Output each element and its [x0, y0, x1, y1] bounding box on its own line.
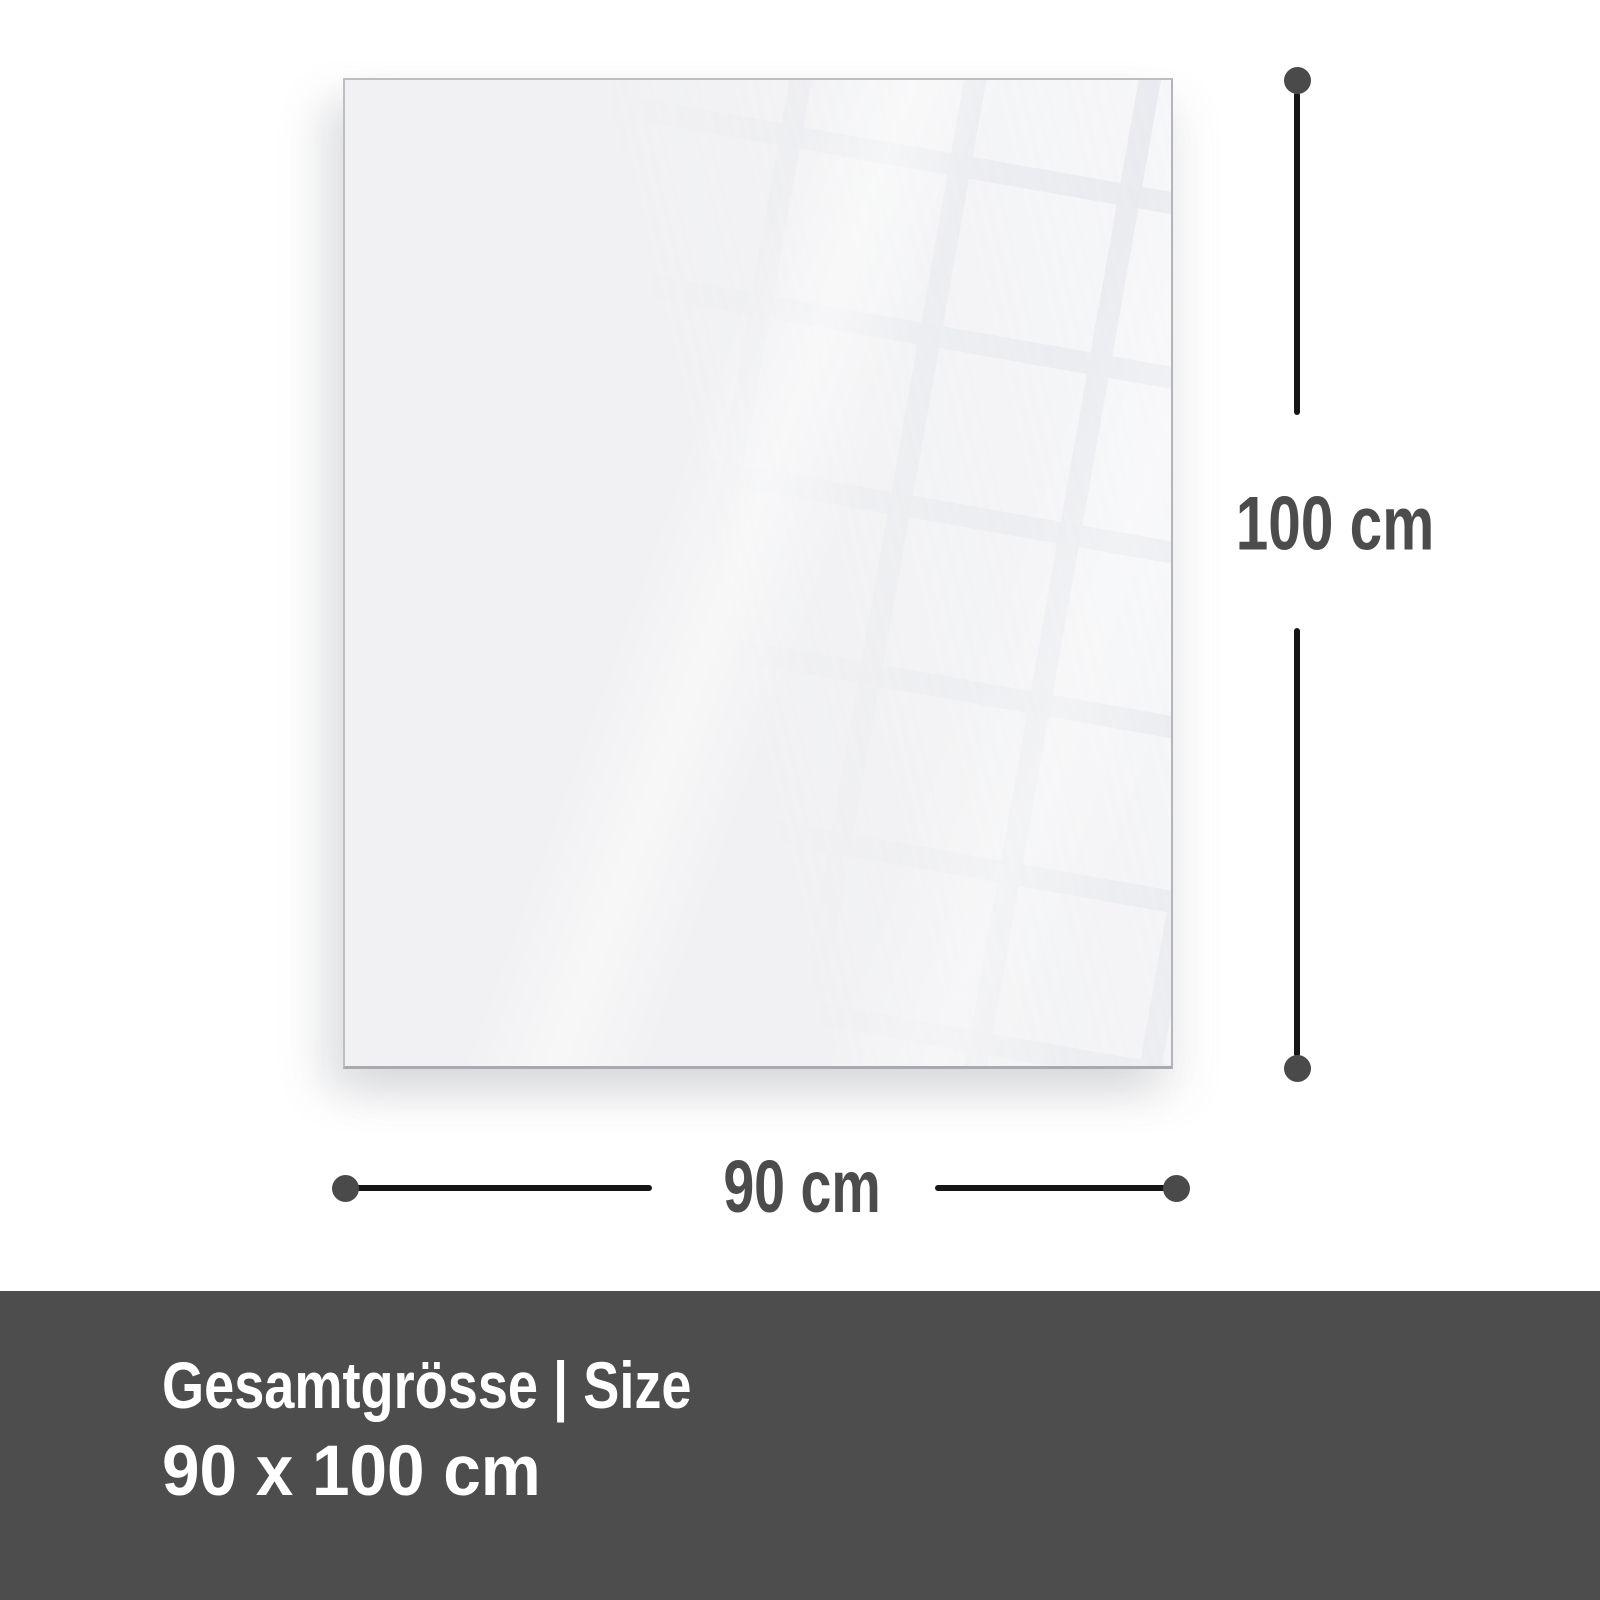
- width-dimension-line-right: [935, 1185, 1176, 1191]
- banner-size-value: 90 x 100 cm: [162, 1433, 541, 1511]
- width-dimension-line-left: [345, 1185, 652, 1191]
- width-dimension-endpoint-right-dot: [1163, 1175, 1190, 1202]
- product-panel: [343, 78, 1173, 1069]
- height-dimension-endpoint-bottom-dot: [1284, 1055, 1311, 1082]
- width-dimension-label: 90 cm: [723, 1150, 880, 1224]
- height-dimension-label: 100 cm: [1236, 487, 1434, 563]
- height-dimension-endpoint-top-dot: [1284, 67, 1311, 94]
- width-dimension-endpoint-left-dot: [332, 1175, 359, 1202]
- panel-glass-sheen: [345, 80, 1171, 1066]
- banner-title: Gesamtgrösse | Size: [162, 1349, 692, 1422]
- product-size-diagram: 100 cm 90 cm Gesamtgrösse | Size 90 x 10…: [0, 0, 1600, 1600]
- size-banner: Gesamtgrösse | Size 90 x 100 cm: [0, 1291, 1600, 1600]
- height-dimension-line-top: [1294, 92, 1300, 415]
- height-dimension-line-bottom: [1294, 628, 1300, 1057]
